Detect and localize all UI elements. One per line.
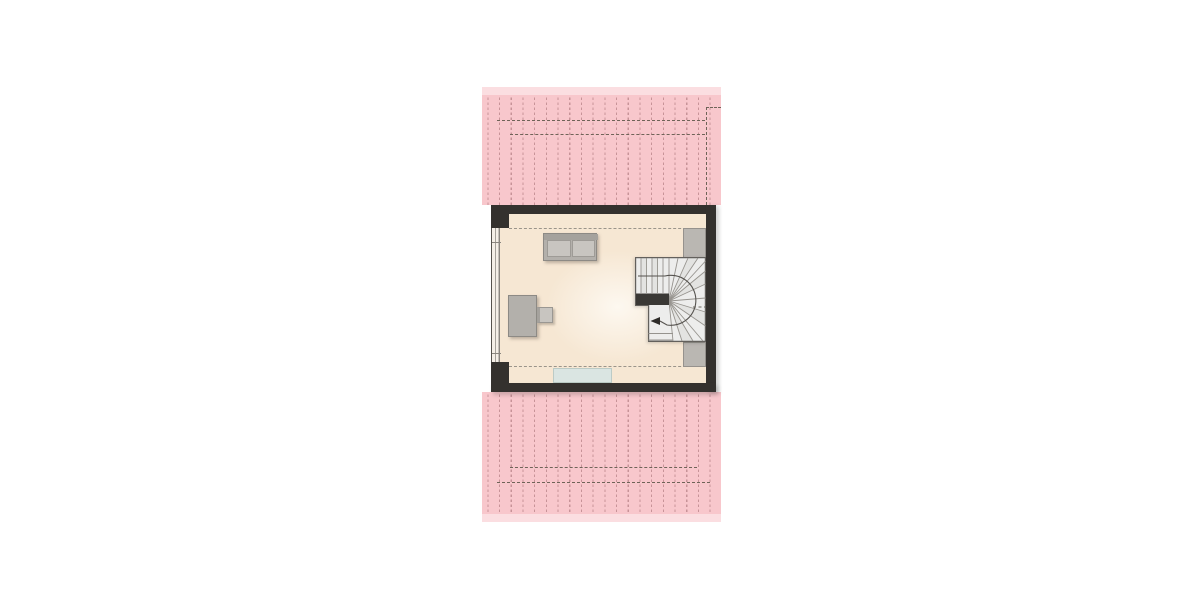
roof-plane-top <box>482 95 721 205</box>
roof-outline-dashed-bottom-inner <box>510 467 697 468</box>
roof-outline-dashed-step-horizontal <box>706 107 721 108</box>
window-strip-left <box>491 228 500 362</box>
closet-top-right <box>683 228 706 259</box>
wall-bottom <box>491 383 716 392</box>
window-glazing-line <box>495 228 496 362</box>
wall-right <box>706 205 716 392</box>
sofa-cushion-left <box>547 240 571 257</box>
roof-outline-dashed-top-outer <box>497 120 705 121</box>
roof-outline-dashed-step-vertical <box>706 107 707 205</box>
headroom-dashed-line-bottom <box>509 366 706 367</box>
stair-landing-block <box>636 294 669 306</box>
sofa-cushion-right <box>572 240 595 257</box>
winder-staircase <box>635 257 708 342</box>
window-glazing-line <box>498 228 499 362</box>
sofa <box>543 233 597 261</box>
roof-outline-dashed-bottom-outer <box>497 482 710 483</box>
roof-plane-bottom <box>482 392 721 514</box>
headroom-dashed-line-top <box>509 228 706 229</box>
roof-plane-bottom-edge <box>482 514 721 522</box>
desk-chair <box>537 307 553 323</box>
window-mullion-tick-bottom <box>492 353 501 354</box>
floor-plan-canvas <box>0 0 1200 600</box>
closet-bottom-right <box>683 342 706 367</box>
window-mullion-tick-top <box>492 242 501 243</box>
wall-pier-top-left <box>491 205 509 228</box>
roof-outline-dashed-top-inner <box>510 134 705 135</box>
wall-pier-bottom-left <box>491 362 509 392</box>
roof-plane-top-edge <box>482 87 721 95</box>
doormat-rug <box>553 368 612 383</box>
desk <box>508 295 537 337</box>
wall-top <box>491 205 716 214</box>
